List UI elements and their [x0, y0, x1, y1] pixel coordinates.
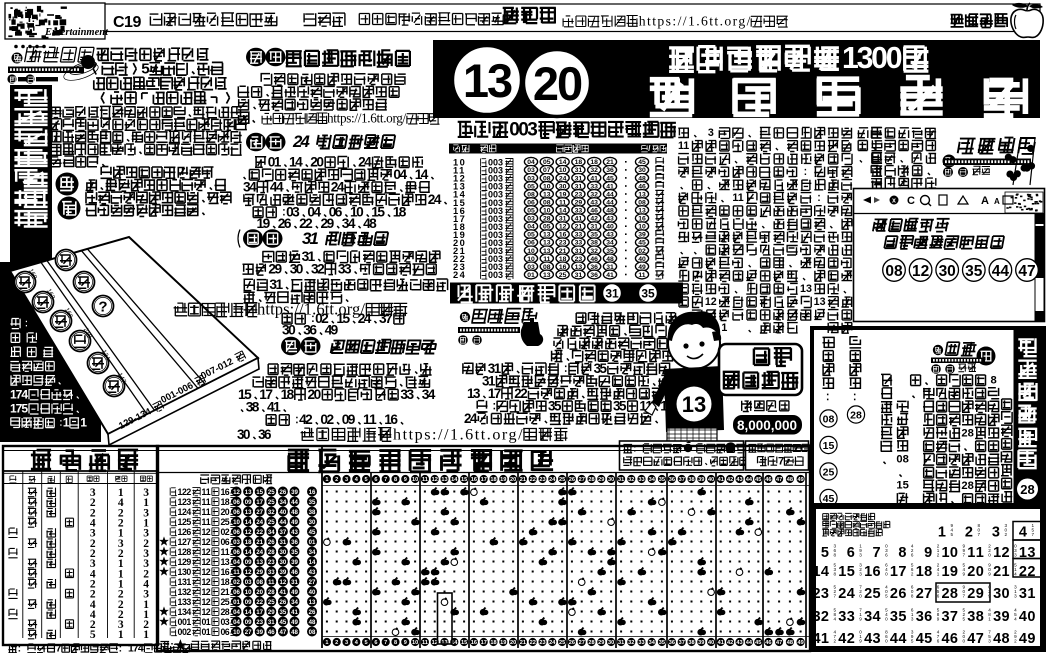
- svg-text:15: 15: [336, 311, 350, 326]
- svg-text:35: 35: [613, 398, 627, 413]
- svg-text:38: 38: [688, 640, 694, 646]
- svg-text:38: 38: [967, 609, 984, 625]
- svg-text:6: 6: [937, 593, 940, 598]
- svg-text:2: 2: [1040, 616, 1043, 621]
- svg-text:08: 08: [896, 453, 908, 465]
- svg-text:8: 8: [911, 593, 914, 598]
- svg-text:32: 32: [813, 609, 830, 625]
- svg-text:30: 30: [282, 323, 296, 338]
- svg-text:42: 42: [838, 631, 855, 647]
- svg-text:13: 13: [800, 283, 812, 295]
- svg-text:39: 39: [256, 629, 263, 636]
- svg-text:23: 23: [813, 586, 830, 602]
- svg-text:12: 12: [202, 527, 211, 537]
- svg-text:11: 11: [221, 547, 230, 557]
- svg-text:31: 31: [618, 477, 624, 483]
- svg-text:08: 08: [256, 579, 263, 586]
- svg-text:27: 27: [245, 629, 252, 636]
- svg-text:22: 22: [530, 640, 536, 646]
- svg-text:5: 5: [951, 532, 954, 537]
- svg-text:30: 30: [290, 262, 304, 277]
- svg-text:25: 25: [268, 519, 275, 526]
- svg-text:7: 7: [834, 593, 837, 598]
- svg-text:3: 3: [911, 616, 914, 621]
- svg-text:43: 43: [309, 569, 316, 576]
- svg-text:04: 04: [233, 559, 240, 566]
- svg-text:0: 0: [885, 638, 888, 643]
- svg-text:42: 42: [299, 412, 313, 427]
- svg-text:16: 16: [384, 412, 398, 427]
- svg-text:20: 20: [310, 155, 324, 170]
- svg-text:45: 45: [309, 529, 316, 536]
- svg-text:37: 37: [942, 609, 959, 625]
- svg-text:24: 24: [549, 477, 556, 483]
- svg-text:37: 37: [280, 529, 287, 536]
- svg-text:35: 35: [309, 499, 316, 506]
- svg-text:14: 14: [309, 559, 316, 566]
- svg-text:5: 5: [911, 638, 914, 643]
- svg-text:39: 39: [280, 569, 287, 576]
- svg-text:03: 03: [221, 617, 230, 627]
- svg-text:11: 11: [268, 579, 275, 586]
- svg-text:44: 44: [291, 499, 298, 506]
- svg-text:24: 24: [358, 311, 372, 326]
- svg-text:28: 28: [588, 640, 594, 646]
- svg-text:20: 20: [967, 564, 984, 580]
- svg-text:7: 7: [873, 545, 881, 561]
- svg-text:11: 11: [422, 477, 428, 483]
- svg-text:08: 08: [885, 263, 903, 280]
- svg-text:2: 2: [911, 571, 914, 576]
- svg-text:6: 6: [911, 552, 914, 557]
- svg-text:7: 7: [384, 640, 387, 646]
- svg-text:6: 6: [847, 545, 855, 561]
- svg-text:16: 16: [309, 489, 316, 496]
- svg-text:134: 134: [178, 607, 192, 617]
- svg-text:48: 48: [363, 216, 377, 231]
- svg-text:15: 15: [896, 480, 908, 492]
- svg-text:48: 48: [291, 629, 298, 636]
- svg-text:43: 43: [864, 631, 881, 647]
- svg-text:49: 49: [1019, 631, 1036, 647]
- svg-text:16: 16: [471, 640, 477, 646]
- svg-text:2: 2: [1005, 532, 1008, 537]
- svg-text:24: 24: [453, 270, 466, 280]
- svg-text:49: 49: [291, 519, 298, 526]
- svg-text:06: 06: [233, 499, 240, 506]
- svg-text:04: 04: [233, 619, 240, 626]
- svg-text:25: 25: [823, 467, 835, 479]
- svg-text:27: 27: [579, 640, 585, 646]
- svg-text:28: 28: [268, 589, 275, 596]
- svg-text:8: 8: [394, 477, 397, 483]
- svg-text:14: 14: [415, 167, 429, 182]
- svg-text:18: 18: [490, 477, 496, 483]
- svg-text:38: 38: [246, 400, 260, 415]
- svg-text:6: 6: [374, 477, 377, 483]
- svg-text:34: 34: [649, 640, 656, 646]
- svg-text:11: 11: [422, 640, 428, 646]
- svg-text:23: 23: [539, 477, 545, 483]
- svg-text:2: 2: [1014, 638, 1017, 643]
- svg-text:31: 31: [280, 539, 287, 546]
- svg-text:12: 12: [245, 569, 252, 576]
- svg-text:25: 25: [864, 586, 881, 602]
- svg-text:5: 5: [963, 616, 966, 621]
- svg-text:34: 34: [422, 387, 436, 402]
- svg-text:19: 19: [942, 564, 959, 580]
- svg-text:42: 42: [727, 477, 733, 483]
- svg-text:https://1.6tt.org/: https://1.6tt.org/: [393, 426, 523, 443]
- svg-text:16: 16: [864, 564, 881, 580]
- svg-text:22: 22: [256, 599, 263, 606]
- svg-text:20: 20: [510, 477, 516, 483]
- svg-text:11: 11: [202, 507, 211, 517]
- svg-text:7: 7: [963, 593, 966, 598]
- svg-text:28: 28: [850, 410, 862, 422]
- svg-text:3: 3: [859, 571, 862, 576]
- svg-text:4: 4: [1019, 525, 1027, 541]
- svg-text:36: 36: [590, 272, 598, 279]
- svg-text:7: 7: [978, 532, 981, 537]
- svg-text:45: 45: [755, 477, 761, 483]
- svg-text:24: 24: [331, 180, 345, 195]
- svg-text:12: 12: [202, 607, 211, 617]
- svg-text:45: 45: [916, 631, 933, 647]
- svg-text:24: 24: [464, 411, 478, 426]
- svg-text:24: 24: [549, 640, 556, 646]
- svg-text:48: 48: [993, 631, 1010, 647]
- svg-text:5: 5: [141, 61, 150, 78]
- svg-text:46: 46: [942, 631, 959, 647]
- svg-text:09: 09: [342, 412, 356, 427]
- svg-text:34: 34: [342, 216, 356, 231]
- svg-text:26: 26: [309, 609, 316, 616]
- svg-text:12: 12: [202, 597, 211, 607]
- svg-text:35: 35: [890, 609, 907, 625]
- svg-text:24: 24: [256, 549, 263, 556]
- svg-text:3: 3: [988, 638, 991, 643]
- svg-text:44: 44: [270, 180, 284, 195]
- svg-text:18: 18: [245, 539, 252, 546]
- svg-text:31: 31: [268, 619, 275, 626]
- svg-text:24: 24: [838, 586, 855, 602]
- svg-text:03: 03: [233, 539, 240, 546]
- svg-text:12: 12: [280, 579, 287, 586]
- svg-text:10: 10: [245, 589, 252, 596]
- svg-text:8: 8: [990, 375, 996, 387]
- svg-text:28: 28: [942, 586, 959, 602]
- svg-text:20: 20: [221, 507, 230, 517]
- svg-text:41: 41: [291, 609, 298, 616]
- svg-text:01: 01: [309, 539, 316, 546]
- svg-text:39: 39: [698, 640, 704, 646]
- svg-text:0: 0: [859, 593, 862, 598]
- svg-text:30: 30: [939, 263, 956, 280]
- svg-text:29: 29: [967, 586, 984, 602]
- svg-text:02: 02: [320, 412, 334, 427]
- svg-text:1: 1: [721, 322, 727, 334]
- svg-text:8,000,000: 8,000,000: [737, 418, 797, 433]
- svg-text:44: 44: [746, 640, 753, 646]
- svg-text:C19: C19: [113, 14, 141, 31]
- svg-text:40: 40: [309, 589, 316, 596]
- svg-text:1: 1: [63, 416, 70, 430]
- svg-text:31: 31: [618, 640, 624, 646]
- svg-text:1300: 1300: [842, 42, 903, 75]
- svg-text:18: 18: [281, 387, 295, 402]
- svg-text:5: 5: [365, 477, 368, 483]
- svg-text:7: 7: [384, 477, 387, 483]
- svg-text:21: 21: [520, 640, 526, 646]
- svg-text:10: 10: [233, 519, 240, 526]
- svg-text:3: 3: [345, 640, 348, 646]
- svg-text:25: 25: [268, 499, 275, 506]
- svg-text:0: 0: [885, 571, 888, 576]
- svg-text:29: 29: [598, 477, 604, 483]
- svg-text:20: 20: [308, 387, 322, 402]
- svg-text:31: 31: [269, 277, 283, 292]
- svg-text:27: 27: [309, 579, 316, 586]
- svg-text:7: 7: [1032, 532, 1035, 537]
- svg-text:33: 33: [268, 569, 275, 576]
- svg-text:49: 49: [797, 640, 803, 646]
- svg-text:9: 9: [404, 477, 407, 483]
- svg-text:002: 002: [178, 627, 192, 637]
- svg-text:1: 1: [325, 477, 328, 483]
- svg-text:14: 14: [245, 609, 252, 616]
- svg-text:44: 44: [746, 477, 753, 483]
- svg-text:06: 06: [233, 509, 240, 516]
- svg-text:06: 06: [233, 529, 240, 536]
- svg-text:41: 41: [267, 400, 281, 415]
- svg-text:48: 48: [309, 619, 316, 626]
- svg-text:2: 2: [335, 477, 338, 483]
- svg-text:49: 49: [291, 589, 298, 596]
- svg-text:131: 131: [178, 577, 192, 587]
- svg-text:22: 22: [530, 477, 536, 483]
- svg-text:45: 45: [755, 640, 761, 646]
- svg-text:41: 41: [606, 272, 614, 279]
- svg-text:12: 12: [705, 296, 717, 308]
- svg-text:30: 30: [280, 549, 287, 556]
- svg-text:09: 09: [245, 559, 252, 566]
- svg-text:16: 16: [221, 567, 230, 577]
- svg-text:36: 36: [291, 539, 298, 546]
- svg-text:34: 34: [291, 599, 298, 606]
- svg-text:25: 25: [559, 640, 565, 646]
- svg-text:29: 29: [598, 640, 604, 646]
- svg-text:28: 28: [1020, 482, 1034, 497]
- svg-text:174: 174: [10, 387, 28, 401]
- svg-text:37: 37: [679, 477, 685, 483]
- svg-text:9: 9: [988, 571, 991, 576]
- svg-text:47: 47: [776, 640, 782, 646]
- svg-text:34: 34: [243, 180, 257, 195]
- svg-text:21: 21: [993, 564, 1010, 580]
- svg-text:18: 18: [221, 497, 230, 507]
- svg-text:18: 18: [221, 577, 230, 587]
- svg-text:11: 11: [202, 487, 211, 497]
- svg-text:29: 29: [321, 216, 335, 231]
- svg-text:6: 6: [374, 640, 377, 646]
- svg-text:42: 42: [727, 640, 733, 646]
- svg-text:25: 25: [268, 489, 275, 496]
- svg-text:126: 126: [178, 527, 192, 537]
- svg-text:9: 9: [404, 640, 407, 646]
- svg-text:123: 123: [178, 497, 192, 507]
- svg-text:2: 2: [1040, 638, 1043, 643]
- svg-text:3: 3: [859, 552, 862, 557]
- svg-text:18: 18: [916, 564, 933, 580]
- svg-text:14: 14: [245, 519, 252, 526]
- svg-text:36: 36: [669, 477, 675, 483]
- svg-text:130: 130: [178, 567, 192, 577]
- svg-text:19: 19: [257, 216, 271, 231]
- svg-text:39: 39: [291, 489, 298, 496]
- svg-text:24: 24: [292, 132, 310, 151]
- svg-text:02: 02: [221, 527, 230, 537]
- svg-text:30: 30: [309, 519, 316, 526]
- svg-text:35: 35: [291, 549, 298, 556]
- svg-text:12: 12: [202, 587, 211, 597]
- svg-text:30: 30: [237, 427, 250, 442]
- svg-text:7: 7: [963, 552, 966, 557]
- svg-text:46: 46: [765, 477, 771, 483]
- svg-text:48: 48: [291, 509, 298, 516]
- svg-text:30: 30: [993, 586, 1010, 602]
- svg-text:33: 33: [638, 477, 644, 483]
- svg-text:03: 03: [245, 579, 252, 586]
- svg-text:127: 127: [178, 537, 192, 547]
- svg-text:4: 4: [834, 616, 837, 621]
- svg-text:A: A: [981, 195, 989, 207]
- svg-text:13: 13: [463, 54, 512, 107]
- svg-text:26: 26: [280, 599, 287, 606]
- svg-text:28: 28: [221, 607, 230, 617]
- svg-text:13: 13: [441, 477, 447, 483]
- svg-text:https://1.6tt.org/: https://1.6tt.org/: [639, 14, 751, 29]
- svg-text:11: 11: [363, 412, 377, 427]
- svg-text:43: 43: [736, 640, 742, 646]
- svg-text:13: 13: [245, 489, 252, 496]
- svg-text:17: 17: [488, 386, 501, 401]
- svg-text:1: 1: [325, 640, 328, 646]
- svg-text:34: 34: [280, 499, 287, 506]
- svg-text:28: 28: [268, 549, 275, 556]
- svg-text:47: 47: [1018, 263, 1035, 280]
- svg-text:01: 01: [202, 627, 211, 637]
- svg-text:41: 41: [718, 477, 724, 483]
- svg-text:13: 13: [814, 296, 826, 308]
- svg-text:15: 15: [823, 440, 835, 452]
- svg-text:15: 15: [256, 489, 263, 496]
- svg-text:10: 10: [233, 629, 240, 636]
- svg-text:?: ?: [98, 299, 107, 316]
- svg-text:31: 31: [302, 229, 319, 248]
- svg-text:11: 11: [202, 497, 211, 507]
- svg-text:01: 01: [233, 599, 240, 606]
- svg-text:17: 17: [481, 477, 487, 483]
- svg-text:11: 11: [202, 517, 211, 527]
- svg-text:21: 21: [221, 587, 230, 597]
- svg-text:47: 47: [967, 631, 984, 647]
- svg-text:35: 35: [548, 398, 562, 413]
- svg-text:001: 001: [178, 617, 192, 627]
- svg-text:11: 11: [678, 140, 689, 152]
- svg-text:133: 133: [178, 597, 192, 607]
- svg-text:36: 36: [669, 640, 675, 646]
- svg-text:129: 129: [178, 557, 192, 567]
- svg-text:41: 41: [280, 589, 287, 596]
- svg-text:2: 2: [937, 552, 940, 557]
- svg-text:49: 49: [325, 323, 339, 338]
- svg-text:4: 4: [1014, 571, 1017, 576]
- svg-text:14: 14: [451, 477, 458, 483]
- svg-text:16: 16: [221, 487, 230, 497]
- svg-text:132: 132: [178, 587, 192, 597]
- svg-text::: :: [18, 644, 21, 653]
- svg-text:Entertainment: Entertainment: [44, 27, 109, 38]
- svg-text:5: 5: [821, 545, 829, 561]
- svg-text:06: 06: [233, 549, 240, 556]
- svg-text:0: 0: [988, 552, 991, 557]
- svg-text:15: 15: [461, 477, 467, 483]
- svg-text:04: 04: [393, 167, 407, 182]
- svg-text:24: 24: [256, 519, 263, 526]
- svg-text:25: 25: [221, 597, 230, 607]
- svg-text:37: 37: [679, 640, 685, 646]
- svg-text:49: 49: [291, 619, 298, 626]
- svg-text:26: 26: [268, 539, 275, 546]
- svg-text:34: 34: [309, 549, 316, 556]
- svg-text:18: 18: [490, 640, 496, 646]
- svg-text:46: 46: [291, 569, 298, 576]
- svg-text:4: 4: [1014, 616, 1017, 621]
- svg-text:17: 17: [890, 564, 907, 580]
- svg-text:28: 28: [961, 480, 973, 492]
- svg-text:40: 40: [280, 509, 287, 516]
- svg-text:08: 08: [309, 629, 316, 636]
- svg-text:11: 11: [967, 545, 984, 561]
- svg-text:9: 9: [859, 616, 862, 621]
- svg-text:12: 12: [432, 477, 438, 483]
- svg-text:44: 44: [890, 631, 907, 647]
- svg-text:26: 26: [280, 489, 287, 496]
- svg-text:125: 125: [178, 517, 192, 527]
- svg-text:06: 06: [221, 627, 230, 637]
- svg-text:30: 30: [608, 640, 614, 646]
- svg-text:32: 32: [268, 509, 275, 516]
- svg-text:38: 38: [309, 509, 316, 516]
- svg-text:2: 2: [834, 638, 837, 643]
- svg-text:12: 12: [202, 557, 211, 567]
- svg-text:27: 27: [916, 586, 933, 602]
- svg-text:003: 003: [488, 270, 503, 280]
- svg-text:14: 14: [245, 549, 252, 556]
- svg-text:3: 3: [1014, 552, 1017, 557]
- svg-text:29: 29: [268, 609, 275, 616]
- svg-text:35: 35: [659, 477, 665, 483]
- svg-text:13: 13: [467, 386, 480, 401]
- svg-text:25: 25: [221, 517, 230, 527]
- svg-text:12: 12: [202, 567, 211, 577]
- svg-text:09: 09: [245, 499, 252, 506]
- svg-text:09: 09: [245, 619, 252, 626]
- svg-text:003: 003: [509, 120, 538, 141]
- svg-text:19: 19: [500, 640, 506, 646]
- svg-text:33: 33: [400, 387, 414, 402]
